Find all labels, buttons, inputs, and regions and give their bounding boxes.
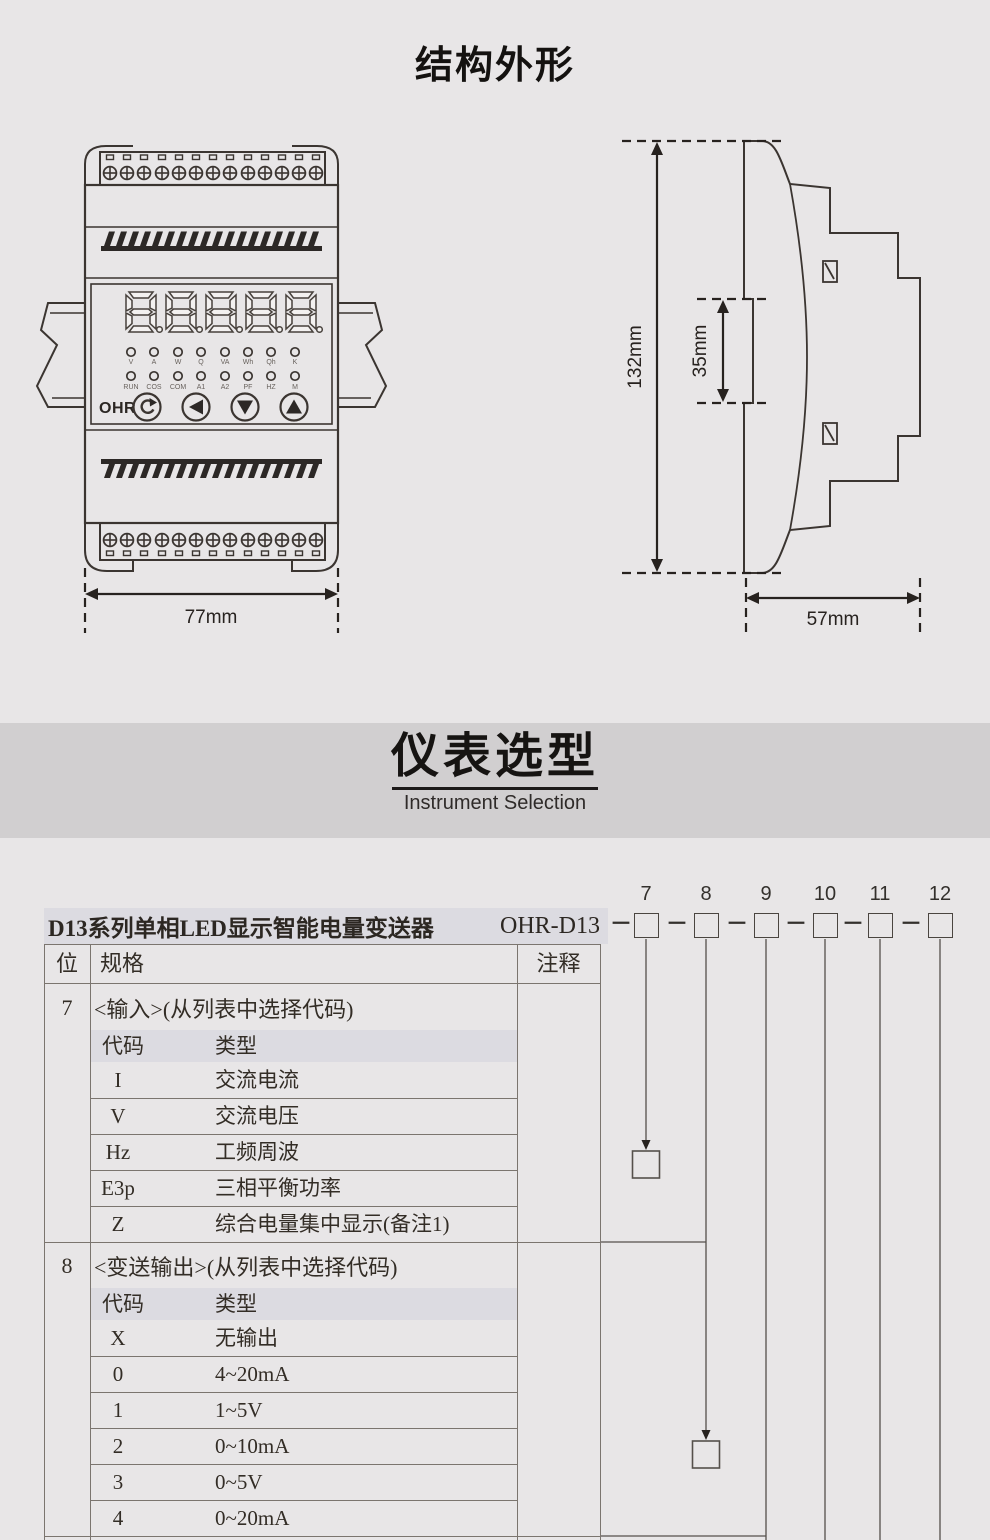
- selection-banner: 仪表选型 Instrument Selection: [0, 723, 990, 838]
- svg-text:V: V: [129, 359, 134, 366]
- model-prefix: OHR-D13: [500, 913, 600, 940]
- code-cell: 2: [90, 1428, 146, 1464]
- vent-louvers-bottom: [101, 459, 322, 478]
- left-triangle-icon: [189, 400, 203, 415]
- code-cell: I: [90, 1062, 146, 1098]
- screw-terminals-top: [104, 155, 323, 179]
- side-profile: [744, 141, 920, 573]
- code-cell: E3p: [90, 1170, 146, 1206]
- svg-text:M: M: [292, 384, 298, 391]
- type-cell: 0~20mA: [215, 1500, 289, 1536]
- product-title: D13系列单相LED显示智能电量变送器: [48, 909, 434, 943]
- up-triangle-icon: [286, 400, 302, 414]
- code-column-header: 代码: [102, 1288, 144, 1320]
- code-cell: 1: [90, 1392, 146, 1428]
- svg-text:Qh: Qh: [266, 359, 275, 366]
- svg-text:A1: A1: [197, 384, 206, 391]
- vent-louvers-top: [101, 232, 322, 252]
- ordering-section: D13系列单相LED显示智能电量变送器 OHR-D13 － － － － － － …: [0, 838, 990, 1540]
- section-position: 8: [44, 1245, 90, 1287]
- model-dash: －: [900, 910, 920, 938]
- product-title-bar: D13系列单相LED显示智能电量变送器 OHR-D13: [44, 908, 608, 944]
- case-curve: [790, 184, 807, 530]
- screw-terminals-bottom: [104, 534, 323, 556]
- svg-text:Wh: Wh: [243, 359, 254, 366]
- led-display: [126, 292, 322, 332]
- type-cell: 三相平衡功率: [215, 1170, 341, 1206]
- brand-logo: OHR: [99, 400, 136, 417]
- model-dash: －: [842, 910, 862, 938]
- svg-text:COM: COM: [170, 384, 187, 391]
- code-cell: V: [90, 1098, 146, 1134]
- type-cell: 交流电流: [215, 1062, 299, 1098]
- code-box-9: [754, 913, 779, 938]
- code-box-10: [813, 913, 838, 938]
- svg-text:A: A: [152, 359, 157, 366]
- type-column-header: 类型: [215, 1030, 257, 1062]
- svg-text:PF: PF: [244, 384, 253, 391]
- svg-text:VA: VA: [221, 359, 230, 366]
- structure-section: 结构外形: [0, 0, 990, 723]
- position-number-12: 12: [929, 882, 951, 906]
- code-cell: Z: [90, 1206, 146, 1242]
- svg-text:HZ: HZ: [266, 384, 276, 391]
- column-header-spec: 规格: [100, 944, 144, 983]
- code-box-12: [928, 913, 953, 938]
- din-rail-right: [338, 303, 386, 407]
- type-cell: 0~10mA: [215, 1428, 289, 1464]
- position-number-8: 8: [700, 882, 711, 906]
- code-cell: 4: [90, 1500, 146, 1536]
- selection-table: 位 规格 注释 7 <输入>(从列表中选择代码) 代码 类型 I 交流电流 V …: [44, 944, 601, 1540]
- svg-text:Q: Q: [198, 359, 204, 366]
- svg-text:K: K: [293, 359, 298, 366]
- svg-text:COS: COS: [146, 384, 162, 391]
- output-code-target-box: [693, 1441, 720, 1468]
- position-number-11: 11: [870, 882, 891, 906]
- width-dimension-label: 77mm: [185, 607, 238, 628]
- svg-text:W: W: [175, 359, 182, 366]
- code-column-header: 代码: [102, 1030, 144, 1062]
- front-view-drawing: V A W Q VA Wh Qh K RUN COS COM A1 A2 PF …: [37, 146, 386, 633]
- model-dash: －: [785, 910, 805, 938]
- type-cell: 交流电压: [215, 1098, 299, 1134]
- svg-text:RUN: RUN: [123, 384, 138, 391]
- selection-subtitle: Instrument Selection: [0, 791, 990, 815]
- type-cell: 综合电量集中显示(备注1): [215, 1206, 450, 1242]
- selection-title: 仪表选型: [0, 723, 990, 785]
- model-dash: －: [610, 910, 630, 938]
- type-cell: 无输出: [215, 1320, 278, 1356]
- code-box-8: [694, 913, 719, 938]
- panel-buttons: [134, 394, 308, 421]
- position-number-10: 10: [814, 882, 836, 906]
- model-dash: －: [666, 910, 686, 938]
- type-cell: 1~5V: [215, 1392, 263, 1428]
- code-cell: 3: [90, 1464, 146, 1500]
- title-underline: [392, 787, 598, 790]
- code-box-11: [868, 913, 893, 938]
- cycle-button: [134, 394, 161, 421]
- height-dimension-label: 132mm: [625, 325, 646, 388]
- code-cell: 0: [90, 1356, 146, 1392]
- din-rail-left: [37, 303, 85, 407]
- rail-dimension-label: 35mm: [690, 325, 711, 378]
- code-header-highlight: [91, 1030, 517, 1062]
- svg-text:A2: A2: [221, 384, 230, 391]
- section-label: <变送输出>(从列表中选择代码): [94, 1248, 397, 1288]
- type-column-header: 类型: [215, 1288, 257, 1320]
- column-header-note: 注释: [517, 944, 600, 983]
- model-dash: －: [726, 910, 746, 938]
- cycle-arrowhead-icon: [150, 398, 158, 407]
- type-cell: 4~20mA: [215, 1356, 289, 1392]
- down-triangle-icon: [237, 401, 253, 415]
- section-position: 7: [44, 987, 90, 1029]
- arrow-to-output-box: [702, 1430, 711, 1440]
- code-cell: Hz: [90, 1134, 146, 1170]
- column-header-position: 位: [44, 944, 90, 983]
- position-number-9: 9: [760, 882, 771, 906]
- section-label: <输入>(从列表中选择代码): [94, 990, 353, 1030]
- mounting-clips: [823, 261, 837, 444]
- type-cell: 0~5V: [215, 1464, 263, 1500]
- code-box-7: [634, 913, 659, 938]
- code-cell: X: [90, 1320, 146, 1356]
- depth-dimension-label: 57mm: [807, 609, 860, 630]
- code-header-highlight: [91, 1288, 517, 1320]
- dimension-drawings: V A W Q VA Wh Qh K RUN COS COM A1 A2 PF …: [0, 0, 990, 723]
- type-cell: 工频周波: [215, 1134, 299, 1170]
- input-code-target-box: [633, 1151, 660, 1178]
- arrow-to-input-box: [642, 1140, 651, 1150]
- side-view-drawing: 132mm 35mm 57mm: [622, 141, 920, 636]
- position-number-7: 7: [640, 882, 651, 906]
